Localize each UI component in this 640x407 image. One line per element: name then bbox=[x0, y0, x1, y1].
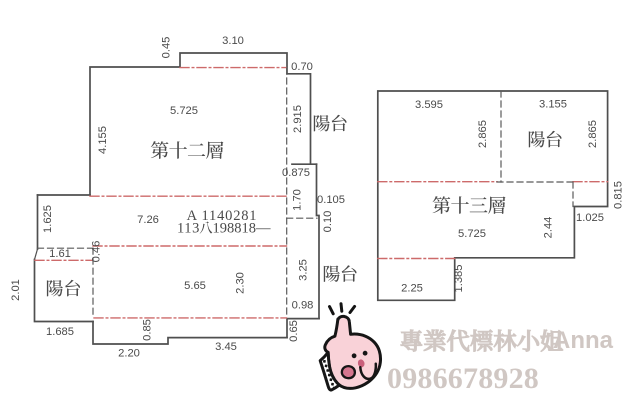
svg-text:7.26: 7.26 bbox=[137, 214, 159, 226]
svg-text:3.155: 3.155 bbox=[539, 99, 567, 111]
svg-text:1.025: 1.025 bbox=[576, 212, 604, 224]
svg-text:0.10: 0.10 bbox=[322, 211, 334, 233]
svg-text:0.875: 0.875 bbox=[282, 167, 310, 179]
svg-text:Anna: Anna bbox=[553, 327, 614, 354]
svg-text:3.45: 3.45 bbox=[215, 341, 237, 353]
svg-text:2.865: 2.865 bbox=[587, 120, 599, 148]
svg-text:2.25: 2.25 bbox=[401, 283, 423, 295]
svg-text:3.25: 3.25 bbox=[298, 259, 310, 281]
svg-text:1.385: 1.385 bbox=[453, 265, 465, 293]
svg-text:1.685: 1.685 bbox=[46, 326, 74, 338]
svg-text:2.44: 2.44 bbox=[543, 217, 555, 239]
svg-text:0986678928: 0986678928 bbox=[387, 362, 539, 395]
svg-text:2.30: 2.30 bbox=[235, 272, 247, 294]
svg-text:2.20: 2.20 bbox=[118, 348, 140, 360]
svg-text:0.815: 0.815 bbox=[613, 181, 625, 209]
svg-text:1.625: 1.625 bbox=[42, 205, 54, 233]
svg-text:5.725: 5.725 bbox=[170, 105, 198, 117]
svg-text:4.155: 4.155 bbox=[97, 126, 109, 154]
svg-text:5.725: 5.725 bbox=[458, 228, 486, 240]
svg-text:5.65: 5.65 bbox=[184, 280, 206, 292]
svg-text:2.865: 2.865 bbox=[477, 120, 489, 148]
svg-text:1.70: 1.70 bbox=[292, 189, 304, 211]
svg-text:0.70: 0.70 bbox=[291, 61, 313, 73]
svg-text:0.46: 0.46 bbox=[91, 241, 103, 263]
svg-text:2.915: 2.915 bbox=[292, 105, 304, 133]
svg-text:198818—: 198818— bbox=[213, 221, 272, 237]
svg-text:113: 113 bbox=[177, 221, 200, 237]
svg-text:0.45: 0.45 bbox=[161, 37, 173, 59]
svg-text:0.85: 0.85 bbox=[142, 319, 154, 341]
svg-text:1.61: 1.61 bbox=[49, 248, 71, 260]
svg-text:0.65: 0.65 bbox=[288, 320, 300, 342]
svg-text:3.595: 3.595 bbox=[415, 99, 443, 111]
svg-text:0.105: 0.105 bbox=[317, 194, 345, 206]
svg-text:0.98: 0.98 bbox=[292, 300, 314, 312]
svg-text:2.01: 2.01 bbox=[10, 279, 22, 301]
svg-text:3.10: 3.10 bbox=[222, 35, 244, 47]
